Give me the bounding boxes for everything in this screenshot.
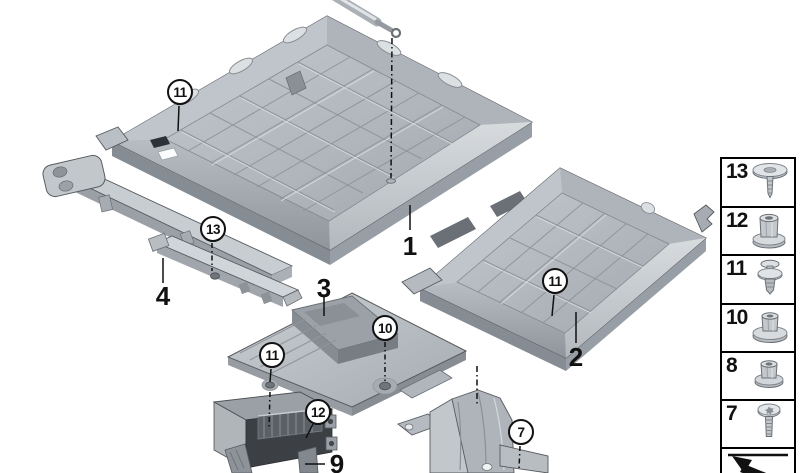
callout-13-rail[interactable]: 13	[200, 216, 226, 242]
legend-label-13: 13	[726, 160, 747, 184]
part-label-3[interactable]: 3	[307, 274, 341, 302]
parts-diagram-canvas: 11 13 11 10 12 7 11 1 2 3 4 9 13 12	[0, 0, 800, 473]
legend-label-11: 11	[726, 257, 746, 281]
legend-item-7[interactable]: 7	[722, 401, 794, 449]
legend-item-10[interactable]: 10	[722, 305, 794, 353]
flange-nut-icon	[736, 353, 794, 399]
rod-seat-foot	[387, 179, 396, 183]
part-label-4[interactable]: 4	[146, 282, 180, 310]
legend-label-10: 10	[726, 306, 747, 330]
part-label-1[interactable]: 1	[393, 232, 427, 260]
callout-10-bracket[interactable]: 10	[372, 315, 398, 341]
callout-11-tray1[interactable]: 11	[167, 79, 193, 105]
legend-label-7: 7	[726, 402, 737, 426]
legend-item-8[interactable]: 8	[722, 353, 794, 401]
legend-item-11[interactable]: 11	[722, 256, 794, 305]
part-label-9[interactable]: 9	[320, 450, 354, 473]
direction-arrow-icon	[722, 449, 794, 473]
legend-item-12[interactable]: 12	[722, 208, 794, 256]
fastener-legend: 13 12	[720, 157, 796, 473]
callout-11-tray2[interactable]: 11	[542, 268, 568, 294]
legend-item-13[interactable]: 13	[722, 159, 794, 208]
callout-7-support[interactable]: 7	[508, 419, 534, 445]
legend-label-8: 8	[726, 354, 737, 378]
legend-label-12: 12	[726, 209, 747, 233]
torx-screw-icon	[736, 401, 794, 447]
part-label-2[interactable]: 2	[559, 343, 593, 371]
callout-11-bracket[interactable]: 11	[259, 342, 285, 368]
callout-12-box[interactable]: 12	[305, 399, 331, 425]
legend-item-arrow[interactable]	[722, 449, 794, 473]
